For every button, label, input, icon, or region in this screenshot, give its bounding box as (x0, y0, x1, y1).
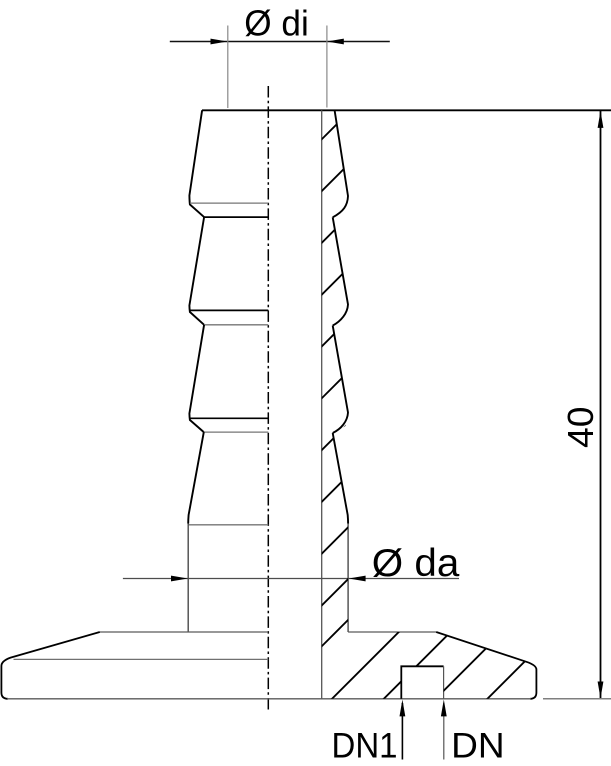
svg-text:40: 40 (560, 406, 601, 448)
svg-text:DN: DN (451, 727, 505, 766)
svg-text:Ø di: Ø di (244, 2, 308, 43)
svg-text:DN1: DN1 (332, 727, 398, 766)
svg-text:Ø da: Ø da (372, 542, 460, 585)
